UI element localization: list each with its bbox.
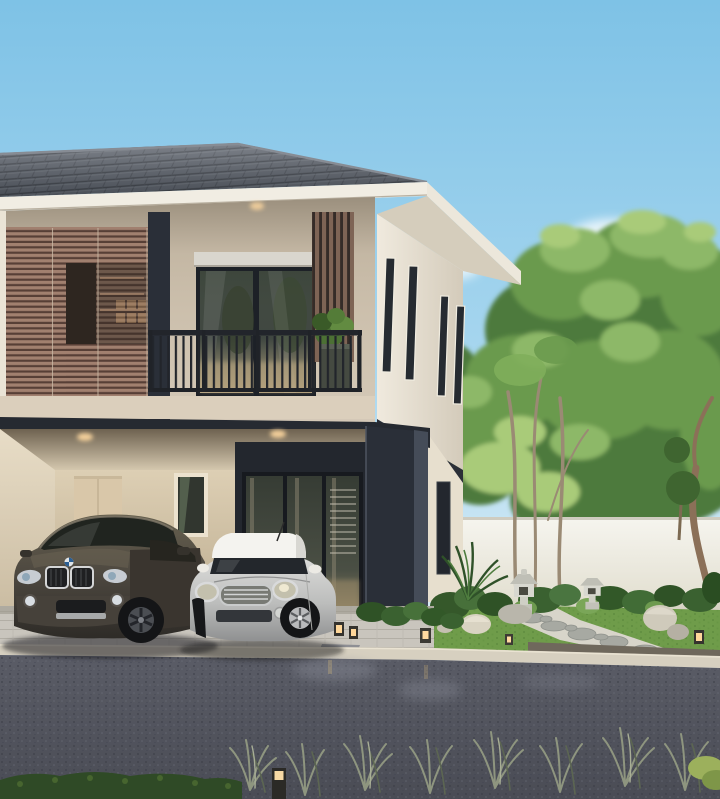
front-facade — [0, 197, 430, 448]
balcony-railing — [148, 330, 362, 392]
suv-foglight-right — [111, 594, 123, 606]
louver-screen — [0, 211, 148, 401]
suv-skid-plate — [56, 613, 106, 619]
carport-window — [174, 473, 208, 537]
suv-mirror-right — [177, 547, 190, 555]
mini-lower-intake — [216, 610, 272, 622]
suv-mirror-left — [20, 550, 32, 557]
suv-front-wheel — [118, 597, 164, 643]
vehicles — [2, 515, 344, 661]
portal-column — [366, 426, 428, 632]
suv-foglight-left — [24, 595, 36, 607]
handrail — [148, 330, 362, 336]
balcony-slab — [0, 396, 375, 419]
road-sheen-1 — [293, 659, 377, 681]
mini-mirror-left — [197, 564, 209, 573]
left-trim — [0, 211, 6, 401]
mini-front-wheel — [280, 598, 320, 638]
mini-mirror-right — [309, 565, 322, 574]
mini-roof — [212, 533, 306, 558]
downlight-2 — [270, 430, 286, 438]
render-canvas — [0, 0, 720, 799]
downlight-1 — [77, 433, 93, 441]
soffit-downlight — [250, 202, 264, 210]
tall-bollard — [272, 768, 286, 799]
road-sheen-2 — [398, 680, 462, 700]
architectural-render — [0, 0, 720, 799]
roller-shade-box — [194, 252, 316, 267]
